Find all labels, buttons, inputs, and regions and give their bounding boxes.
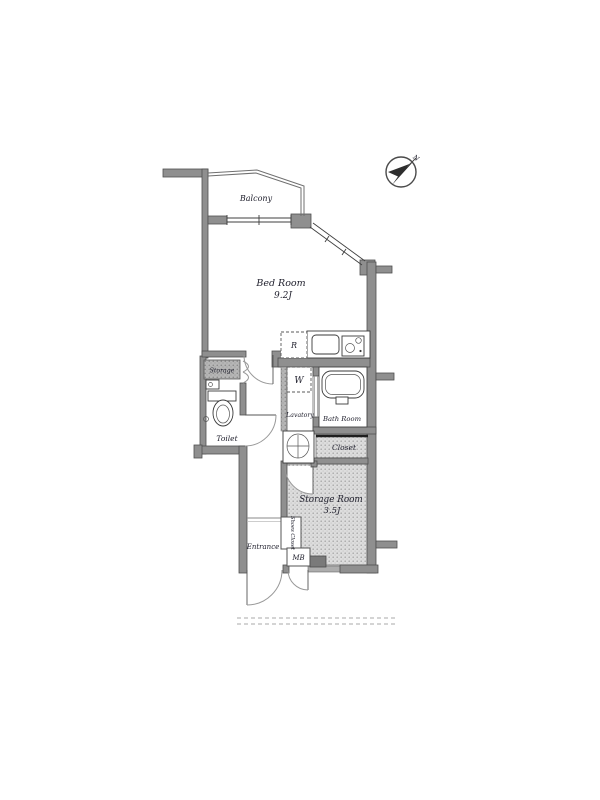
wall-segment bbox=[163, 169, 208, 177]
label-closet: Closet bbox=[332, 443, 357, 452]
wall-segment bbox=[202, 351, 246, 357]
label-storage: Storage bbox=[210, 368, 235, 375]
wall-segment bbox=[313, 427, 376, 434]
toilet-door bbox=[245, 415, 276, 446]
label-storage-size: 3.5J bbox=[324, 506, 342, 516]
label-bedroom-size: 9.2J bbox=[274, 291, 293, 301]
wall-segment bbox=[194, 445, 202, 458]
wall-segment bbox=[202, 169, 208, 358]
label-storage-room: Storage Room bbox=[299, 495, 363, 505]
corridor-boundary bbox=[237, 618, 397, 624]
wall-segment bbox=[367, 262, 376, 573]
wall-segment bbox=[208, 216, 227, 224]
wall-segment bbox=[340, 565, 378, 573]
label-shoes-closet: Shoes Closet bbox=[289, 516, 295, 551]
label-refrigerator: R bbox=[290, 341, 297, 350]
label-toilet: Toilet bbox=[216, 434, 238, 443]
label-meter-box: MB bbox=[291, 554, 304, 562]
bathtub bbox=[322, 371, 364, 398]
wall-segment bbox=[239, 446, 247, 573]
hatched-partition bbox=[281, 367, 287, 431]
wall-segment bbox=[240, 383, 246, 415]
wall-segment bbox=[313, 367, 319, 376]
toilet-fixture bbox=[204, 391, 237, 426]
wall-segment bbox=[281, 461, 287, 517]
floor-plan-page: N Balcony Bed Room 9.2J Storage Toilet R… bbox=[0, 0, 600, 800]
meter-box-door bbox=[288, 570, 308, 590]
kitchen-counter bbox=[307, 331, 370, 358]
toilet-tank bbox=[208, 391, 236, 401]
toilet-bowl bbox=[213, 400, 233, 426]
wall-segment bbox=[291, 214, 311, 228]
entrance-door bbox=[247, 570, 282, 605]
window-north bbox=[227, 215, 291, 225]
floor-plan-drawing: N Balcony Bed Room 9.2J Storage Toilet R… bbox=[0, 0, 600, 800]
wash-basin bbox=[283, 431, 314, 463]
bathtub-step bbox=[336, 397, 348, 404]
stove bbox=[342, 336, 364, 356]
label-bath-room: Bath Room bbox=[322, 415, 361, 423]
compass-icon: N bbox=[386, 152, 421, 187]
label-washer: W bbox=[294, 376, 304, 386]
pipe-space-block bbox=[310, 556, 326, 567]
wall-segment bbox=[376, 373, 394, 380]
wall-segment bbox=[376, 266, 392, 273]
label-bedroom: Bed Room bbox=[255, 278, 305, 289]
kitchen-sink bbox=[312, 335, 339, 354]
balcony-outline bbox=[208, 170, 304, 216]
label-balcony: Balcony bbox=[239, 194, 273, 203]
label-lavatory: Lavatory bbox=[285, 412, 314, 419]
water-heater bbox=[206, 380, 219, 389]
wall-segment bbox=[313, 458, 368, 464]
label-entrance: Entrance bbox=[246, 543, 280, 551]
wall-segment bbox=[313, 417, 319, 427]
window-diagonal bbox=[310, 223, 365, 265]
wall-segment bbox=[376, 541, 397, 548]
wall-segment bbox=[278, 358, 370, 367]
bedroom-door bbox=[244, 355, 273, 384]
